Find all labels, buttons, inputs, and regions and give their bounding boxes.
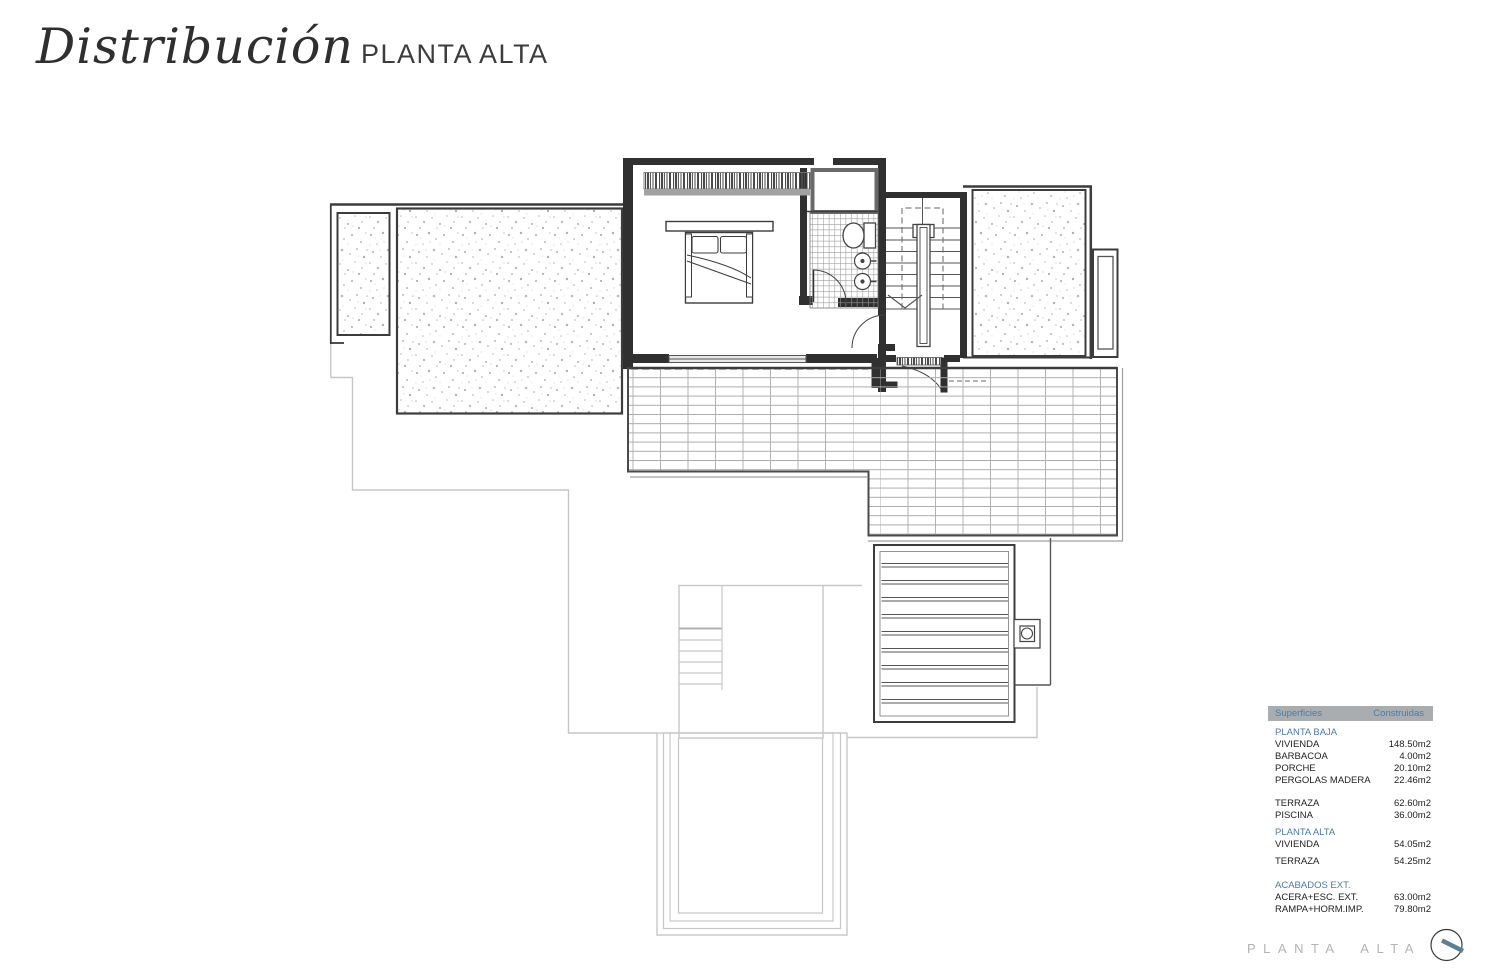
surfaces-table: Superficies Construidas PLANTA BAJA VIVI… <box>1268 706 1433 916</box>
gravel-roof-large <box>397 209 622 414</box>
bed <box>686 233 753 304</box>
table-row: VIVIENDA 54.05m2 <box>1268 839 1433 851</box>
pillow-left <box>692 237 718 254</box>
pergola-column <box>1014 620 1040 649</box>
shower-tray <box>813 170 877 212</box>
table-row: TERRAZA 62.60m2 <box>1268 798 1433 810</box>
col-header-construidas: Construidas <box>1373 708 1424 720</box>
headboard-shelf <box>666 222 773 232</box>
pool-interior <box>679 738 823 913</box>
roof-terrace-left <box>330 204 624 414</box>
planter-inner <box>1098 257 1113 350</box>
col-header-superficies: Superficies <box>1275 708 1322 720</box>
table-row: PERGOLAS MADERA 22.46m2 <box>1268 775 1433 787</box>
table-row: TERRAZA 54.25m2 <box>1268 856 1433 868</box>
section-planta-baja-ext: TERRAZA 62.60m2 PISCINA 36.00m2 <box>1268 798 1433 822</box>
terrace-tiled <box>628 368 1123 541</box>
gravel-roof-right <box>973 190 1086 356</box>
section-planta-alta-ext: TERRAZA 54.25m2 <box>1268 856 1433 868</box>
section-header: PLANTA BAJA <box>1268 727 1433 739</box>
pergola <box>874 538 1051 722</box>
gravel-roof-narrow <box>338 213 390 335</box>
section-acabados-ext: ACABADOS EXT. ACERA+ESC. EXT. 63.00m2 RA… <box>1268 880 1433 916</box>
roof-terrace-right <box>963 186 1118 359</box>
wardrobe-front <box>644 189 810 196</box>
toilet <box>843 223 876 248</box>
pool-outline <box>657 733 847 935</box>
terrace-door-sill <box>897 358 942 366</box>
section-planta-baja: PLANTA BAJA VIVIENDA 148.50m2 BARBACOA 4… <box>1268 727 1433 787</box>
surfaces-table-header: Superficies Construidas <box>1268 706 1433 721</box>
pillow-right <box>721 237 747 254</box>
table-row: PORCHE 20.10m2 <box>1268 763 1433 775</box>
table-row: ACERA+ESC. EXT. 63.00m2 <box>1268 892 1433 904</box>
wardrobe <box>644 173 810 190</box>
floor-name-label: PLANTA ALTA <box>1247 941 1421 956</box>
table-row: BARBACOA 4.00m2 <box>1268 751 1433 763</box>
bathroom <box>807 170 878 308</box>
section-header: PLANTA ALTA <box>1268 827 1433 839</box>
table-row: PISCINA 36.00m2 <box>1268 810 1433 822</box>
section-planta-alta: PLANTA ALTA VIVIENDA 54.05m2 <box>1268 827 1433 851</box>
section-header: ACABADOS EXT. <box>1268 880 1433 892</box>
table-row: RAMPA+HORM.IMP. 79.80m2 <box>1268 904 1433 916</box>
north-compass-icon <box>1428 927 1468 967</box>
table-row: VIVIENDA 148.50m2 <box>1268 739 1433 751</box>
